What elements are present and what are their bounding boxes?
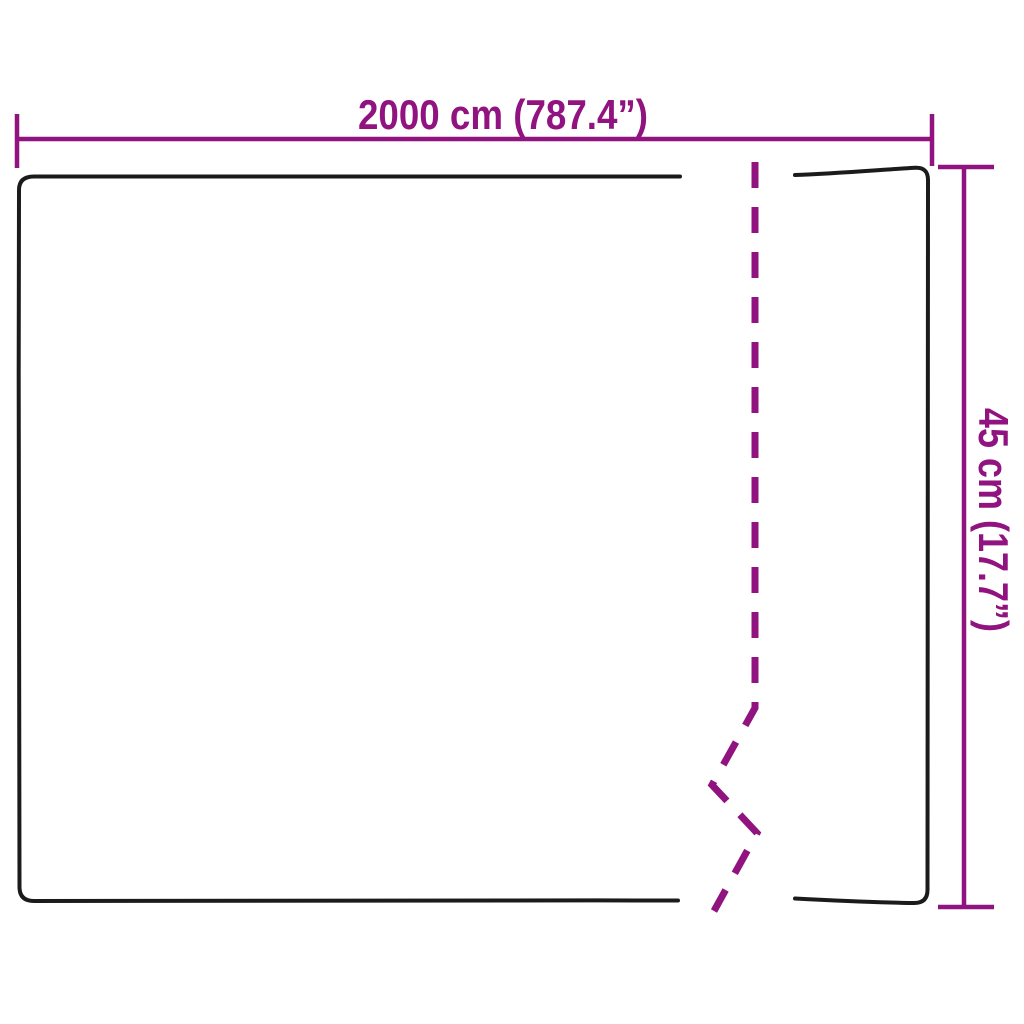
- height-dimension-label: 45 cm (17.7”): [970, 408, 1017, 632]
- break-dashed-line: [712, 162, 757, 911]
- product-outline-left-part: [19, 176, 680, 901]
- product-outline: [19, 168, 928, 903]
- diagram-canvas: 2000 cm (787.4”) 45 cm (17.7”): [0, 0, 1024, 1024]
- width-dimension-label: 2000 cm (787.4”): [358, 91, 648, 138]
- product-outline-right-part: [795, 168, 928, 903]
- dimension-diagram: 2000 cm (787.4”) 45 cm (17.7”): [0, 0, 1024, 1024]
